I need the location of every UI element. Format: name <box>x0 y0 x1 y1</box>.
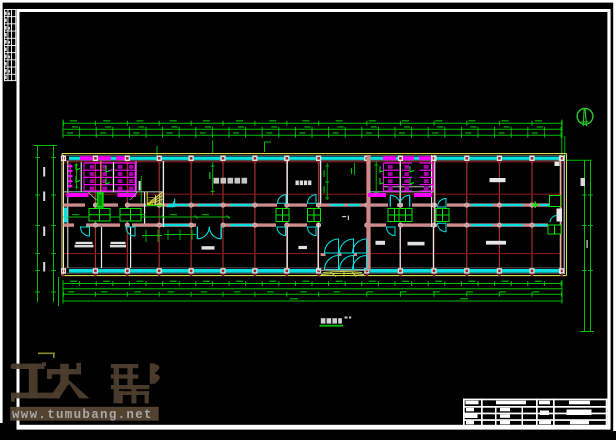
svg-text:www.tumubang.net: www.tumubang.net <box>12 408 153 422</box>
